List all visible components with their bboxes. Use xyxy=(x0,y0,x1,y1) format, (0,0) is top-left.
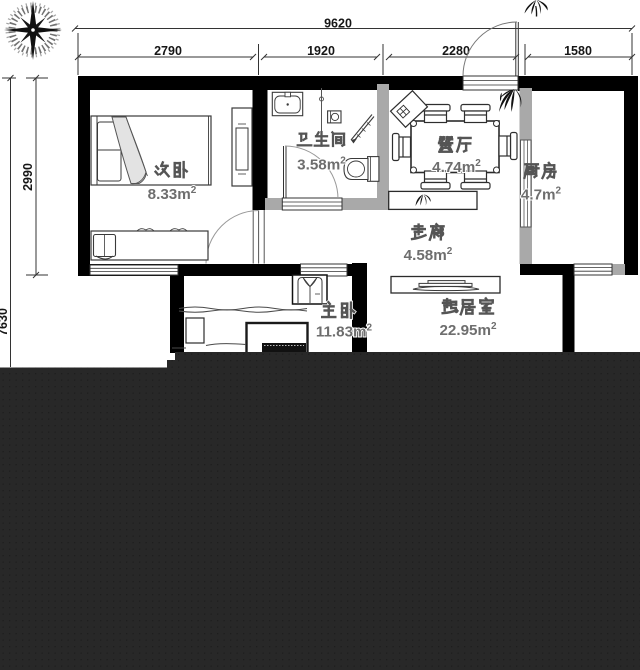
svg-text:2990: 2990 xyxy=(21,163,35,191)
svg-text:1920: 1920 xyxy=(307,44,335,58)
svg-text:4.58m2: 4.58m2 xyxy=(404,246,453,264)
svg-text:9620: 9620 xyxy=(324,17,352,31)
svg-text:4.74m2: 4.74m2 xyxy=(432,158,481,176)
svg-text:22.95m2: 22.95m2 xyxy=(439,321,497,339)
svg-text:4.7m2: 4.7m2 xyxy=(521,186,562,204)
svg-text:2280: 2280 xyxy=(442,44,470,58)
svg-text:8.33m2: 8.33m2 xyxy=(148,185,197,203)
svg-text:3.58m2: 3.58m2 xyxy=(297,156,346,174)
svg-text:7630: 7630 xyxy=(0,308,10,336)
svg-text:1580: 1580 xyxy=(564,44,592,58)
svg-text:11.83m2: 11.83m2 xyxy=(316,323,373,341)
svg-text:2790: 2790 xyxy=(154,44,182,58)
